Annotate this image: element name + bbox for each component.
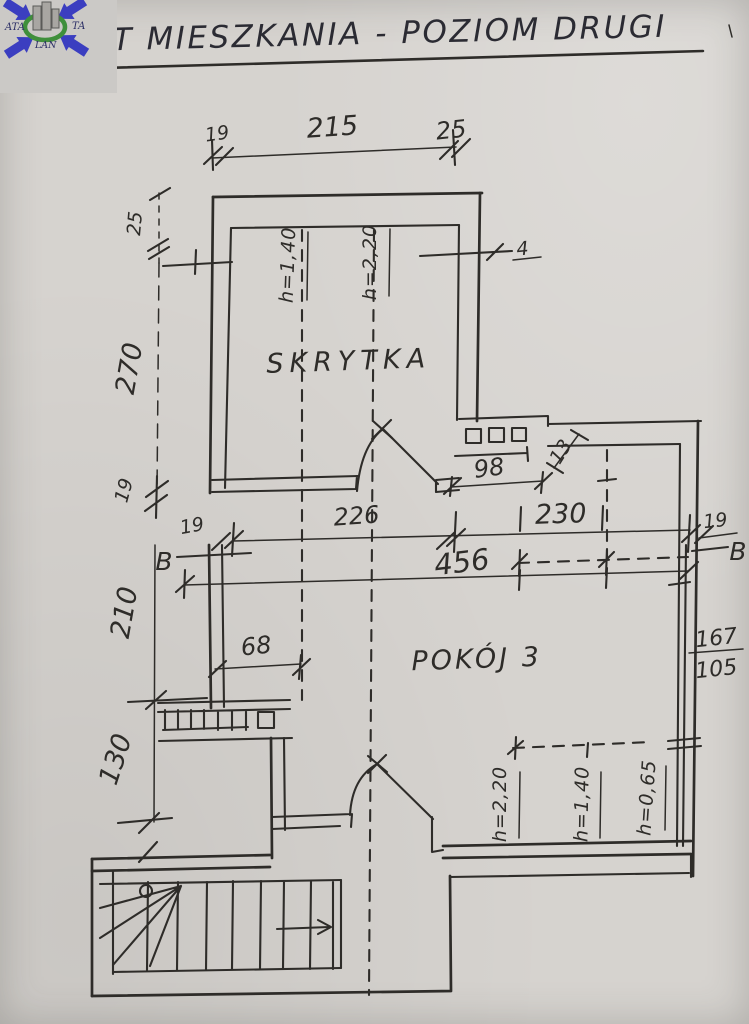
dim-left-130: 130: [93, 730, 138, 789]
dim-wall-19-right: 19: [702, 509, 728, 533]
height-pokoj-220: h=2,20: [489, 766, 511, 842]
door-leaf: [377, 764, 433, 819]
dim-top-25: 25: [435, 115, 468, 146]
window-symbol: [466, 429, 481, 443]
dim-left-210: 210: [105, 584, 144, 640]
height-pokoj-065: h=0,65: [633, 759, 660, 837]
section-b-left: B: [155, 547, 172, 576]
dim-top-19: 19: [204, 121, 231, 146]
door-tip-mark: [368, 755, 387, 773]
height-boundary-dashed-lines: [302, 230, 616, 995]
pokoj-height-labels: h=2,20 h=1,40 h=0,65: [489, 737, 666, 842]
height-pokoj-140: h=1,40: [570, 766, 593, 843]
window-symbol: [489, 428, 504, 442]
door-swing-arc: [357, 429, 383, 491]
skrytka-height-labels: h=1,40 h=2,20: [276, 224, 390, 303]
door-swing-arc: [350, 764, 377, 815]
window-symbol: [512, 428, 526, 441]
pokoj-left-wall: [158, 545, 292, 858]
logo-text-bottom: LAN: [34, 40, 57, 51]
dim-105: 105: [694, 655, 738, 684]
dim-mark-4: 4: [515, 238, 529, 261]
stairwell: [92, 855, 451, 996]
stair-treads: [147, 880, 341, 970]
stair-direction-arrow: [277, 920, 331, 934]
dim-68: 68: [240, 631, 273, 662]
room-label-skrytka: SKRYTKA: [266, 343, 432, 380]
middle-dimension-lines: 226 230 19 19 456: [176, 498, 737, 598]
logo-text-left: ATA: [4, 22, 25, 33]
door-pokoj: [350, 755, 433, 819]
title-block: RZUT MIESZKANIA - POZIOM DRUGI: [30, 9, 732, 70]
dim-98-group: 98: [444, 452, 552, 496]
section-b-right: B: [729, 537, 746, 566]
door-skrytka: [357, 420, 438, 491]
top-dimension-chain: 19 215 25: [204, 110, 470, 170]
skrytka-walls: [210, 193, 482, 493]
dim-226: 226: [333, 500, 381, 531]
dim-13: 13: [545, 436, 576, 468]
floor-plan-drawing: RZUT MIESZKANIA - POZIOM DRUGI 19 215 25…: [0, 0, 749, 1024]
dim-230: 230: [534, 498, 587, 531]
dim-wall-19-left: 19: [178, 513, 206, 539]
dim-left-19: 19: [110, 476, 138, 505]
radiator-symbol: [258, 712, 274, 728]
pen-mark: [729, 25, 732, 37]
dim-left-25: 25: [123, 210, 147, 236]
scanned-floor-plan-page: RZUT MIESZKANIA - POZIOM DRUGI 19 215 25…: [0, 0, 749, 1024]
door-tip-mark: [372, 420, 392, 439]
right-wall: 167 105: [668, 421, 743, 876]
dim-167: 167: [694, 624, 738, 653]
height-skrytka-220: h=2,20: [359, 224, 381, 300]
dim-top-215: 215: [306, 110, 360, 145]
level-marks: 4: [163, 238, 541, 274]
logo-stamp: ATA TA LAN: [0, 0, 117, 93]
pokoj-bottom-walls: [272, 814, 691, 877]
dim-left-270: 270: [110, 340, 149, 396]
room-label-pokoj3: POKÓJ 3: [411, 641, 543, 678]
dim-13-group: 13: [545, 430, 588, 473]
dim-456: 456: [432, 542, 491, 582]
dim-98: 98: [472, 452, 506, 484]
logo-text-right: TA: [72, 21, 85, 32]
page-title: RZUT MIESZKANIA - POZIOM DRUGI: [39, 9, 667, 60]
height-skrytka-140: h=1,40: [276, 226, 301, 303]
